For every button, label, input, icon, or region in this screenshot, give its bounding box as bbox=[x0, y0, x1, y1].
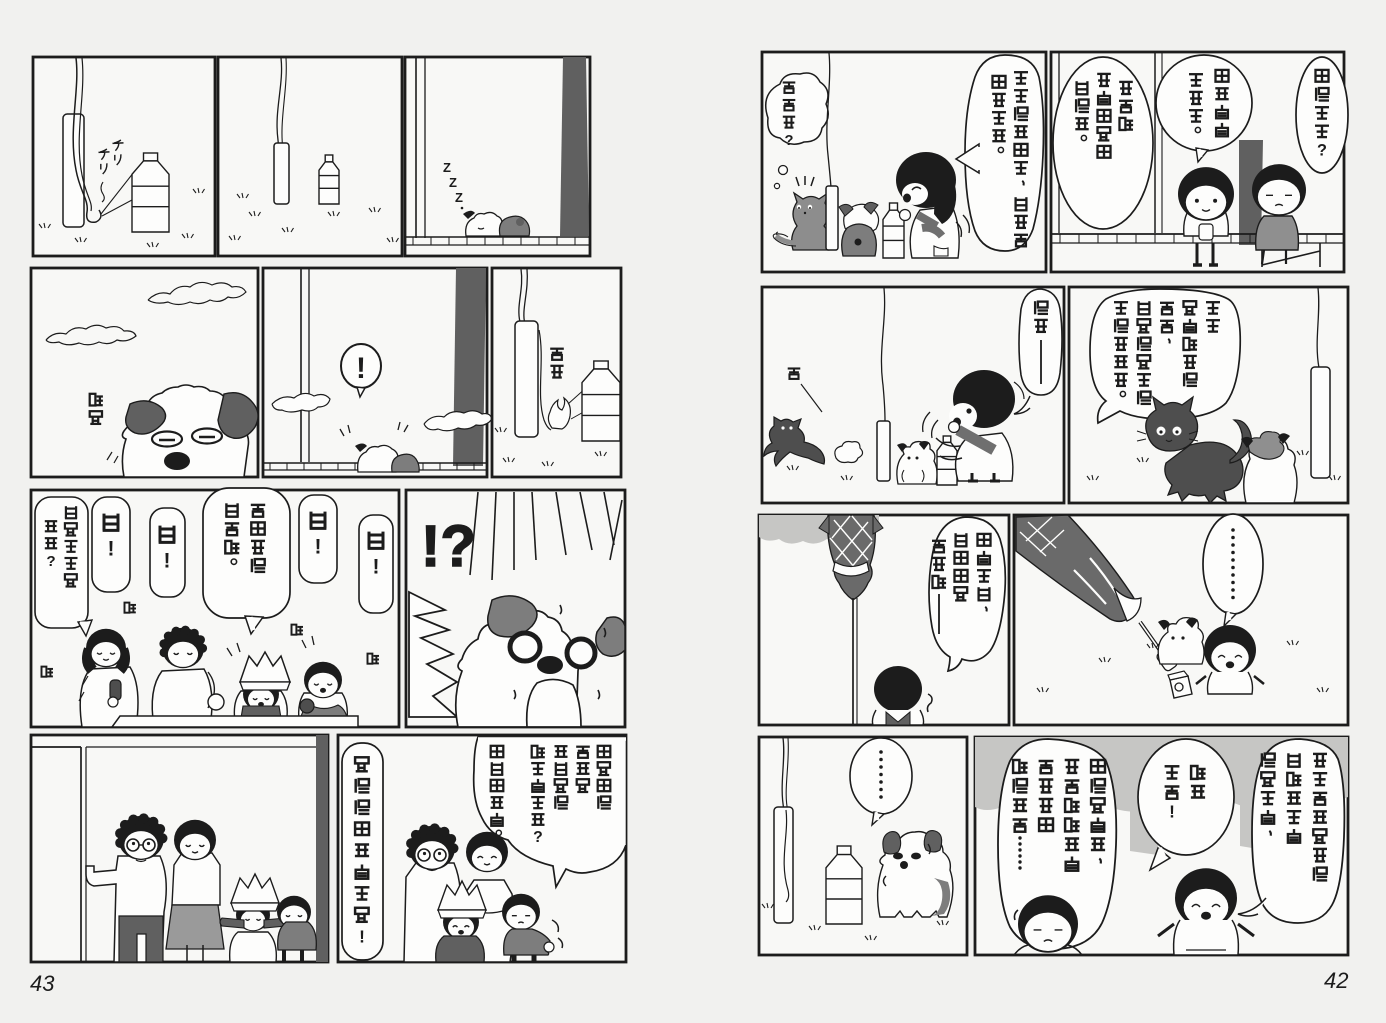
svg-text:!: ! bbox=[315, 536, 322, 559]
svg-text:?: ? bbox=[46, 553, 55, 570]
svg-text:?: ? bbox=[1317, 142, 1327, 160]
svg-text:43: 43 bbox=[30, 971, 55, 996]
svg-text:Z: Z bbox=[455, 190, 463, 205]
svg-text:!: ! bbox=[164, 550, 171, 573]
svg-text:?: ? bbox=[533, 829, 543, 846]
svg-text:!?: !? bbox=[421, 514, 476, 579]
svg-text:Z: Z bbox=[449, 175, 457, 190]
svg-text:!: ! bbox=[356, 352, 366, 385]
svg-text:!: ! bbox=[1169, 802, 1175, 822]
svg-text:!: ! bbox=[108, 538, 115, 561]
svg-text:42: 42 bbox=[1324, 968, 1348, 993]
svg-text:!: ! bbox=[359, 927, 365, 947]
svg-text:!: ! bbox=[373, 556, 380, 579]
svg-text:Z: Z bbox=[443, 160, 451, 175]
svg-text:?: ? bbox=[785, 133, 794, 149]
